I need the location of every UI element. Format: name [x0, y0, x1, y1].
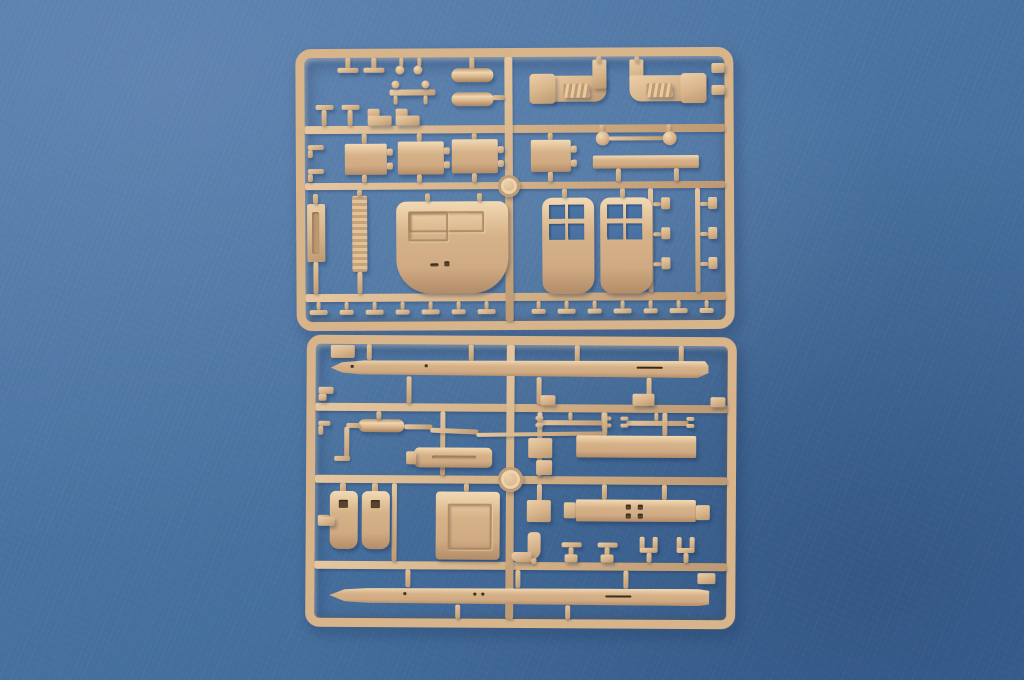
rail-rivet — [473, 593, 476, 596]
sprue-gate — [684, 553, 689, 563]
sprue-gate — [565, 301, 569, 309]
tie-rod-part — [626, 421, 688, 426]
sprue-bottom — [305, 335, 737, 630]
sprue-top — [295, 47, 734, 331]
hook-part — [708, 197, 717, 209]
sprue-gate — [602, 412, 607, 435]
beam-hole — [638, 505, 643, 510]
hatch-outline — [448, 504, 492, 550]
sprue-gate — [700, 232, 708, 236]
door-window — [626, 223, 642, 239]
sprue-gate — [357, 272, 362, 294]
fork-end — [535, 423, 543, 427]
clip-part — [540, 395, 555, 405]
sprue-gate — [548, 133, 553, 140]
fender-pillar-left — [592, 60, 606, 89]
sprue-gate — [417, 174, 422, 182]
rail-rivet — [481, 593, 484, 596]
clip-foot-part — [558, 309, 576, 314]
sprue-gate — [596, 57, 601, 63]
sprue-gate — [485, 301, 489, 309]
sprue-gate — [537, 301, 541, 309]
sprue-gate — [705, 300, 709, 308]
box-tab — [498, 160, 504, 167]
beam-hole — [626, 514, 631, 519]
axle-disc — [663, 131, 677, 145]
clip-foot-part — [670, 308, 688, 313]
fork-end — [620, 424, 628, 428]
box-part — [398, 141, 444, 174]
sprue-gate — [401, 302, 405, 310]
pin-head-part — [395, 66, 404, 75]
fender-block-right — [680, 73, 706, 103]
box-small-part — [536, 460, 552, 475]
sprue-gate — [317, 302, 321, 310]
sprue-gate — [620, 188, 625, 197]
box-small-part — [527, 500, 551, 522]
clip-foot-part — [340, 310, 354, 315]
sprue-gate — [649, 300, 653, 308]
sprue-gate — [357, 190, 362, 196]
sprue-gate — [455, 605, 460, 619]
sprue-gate — [677, 300, 681, 308]
gearbox-line — [432, 455, 476, 458]
gearbox-cap — [406, 451, 416, 464]
sprue-gate — [308, 150, 313, 158]
elbow-pipe-part — [512, 552, 532, 562]
sprue-gate — [373, 302, 377, 310]
sprue-gate — [575, 345, 580, 361]
fender-ribs-left — [563, 84, 589, 98]
t-clip-part — [363, 68, 384, 73]
clip-foot-part — [452, 309, 466, 314]
axle-rod — [609, 136, 664, 140]
tank-hole — [371, 500, 380, 508]
sprue-gate — [469, 345, 474, 361]
sprue-gate — [313, 194, 318, 204]
cab-panel-dot — [444, 261, 449, 266]
edge-tab-part — [711, 63, 724, 73]
clip-foot-part — [396, 310, 410, 315]
sprue-gate — [548, 172, 553, 182]
sprue-gate — [654, 413, 658, 421]
sprue-gate — [623, 571, 628, 589]
sprue-gate — [700, 262, 708, 266]
sprue-gate — [406, 376, 411, 403]
sprue-gate — [367, 344, 372, 360]
tank-hole — [339, 500, 348, 508]
sprue-gate — [653, 202, 661, 206]
cylinder-part — [451, 68, 493, 82]
beam-end-cap — [696, 505, 710, 520]
sprue-gate — [313, 262, 318, 294]
clip-foot-part — [588, 309, 602, 314]
box-part — [345, 144, 387, 175]
hook-part — [708, 227, 717, 239]
clip-foot-part — [478, 309, 496, 314]
tie-rod-part — [541, 420, 605, 425]
box-tab — [444, 161, 450, 168]
step-part — [368, 116, 392, 126]
sprue-gate — [647, 553, 652, 563]
t-clip-part — [337, 68, 358, 73]
muffler-part — [358, 419, 404, 432]
photo-scene — [0, 0, 1024, 680]
linkage-ball — [391, 81, 399, 89]
running-board-part — [593, 155, 699, 169]
post-foot — [601, 554, 614, 562]
sprue-gate — [417, 133, 422, 141]
door-window — [607, 223, 623, 239]
edge-bit-part — [318, 517, 335, 526]
cylinder-part — [451, 92, 493, 106]
sprue-gate — [653, 262, 661, 266]
step-part — [396, 115, 420, 125]
runner-v-left-lower — [392, 483, 397, 561]
beam-hole — [626, 505, 631, 510]
sprue-gate — [679, 346, 684, 362]
sprue-gate — [602, 484, 607, 499]
sprue-gate — [531, 558, 536, 564]
logo-medallion — [498, 175, 520, 197]
post-foot — [565, 554, 578, 562]
pin-head-part — [413, 65, 422, 74]
sprue-gate — [662, 485, 667, 500]
sprue-gate — [376, 411, 381, 419]
rail-rivet — [403, 592, 406, 595]
fork-end — [620, 417, 628, 421]
sprue-gate — [464, 484, 469, 492]
beam-part — [576, 499, 696, 522]
hook-part — [661, 257, 670, 269]
edge-tab-part — [710, 397, 725, 407]
sprue-gate — [318, 426, 323, 435]
sprue-gate — [621, 300, 625, 308]
edge-tab-part — [711, 85, 724, 95]
sprue-gate — [515, 570, 520, 588]
rail-rivet — [351, 365, 354, 368]
box-tab — [444, 147, 450, 154]
sprue-gate — [424, 95, 428, 104]
box-tab — [571, 160, 577, 167]
box-tab — [387, 163, 393, 170]
clip-foot-part — [614, 308, 632, 313]
box-tab — [571, 146, 577, 153]
box-tab — [498, 146, 504, 153]
door-window — [549, 205, 565, 219]
rail-rivet — [425, 364, 428, 367]
sprue-gate — [362, 175, 367, 183]
rail-slot — [605, 596, 631, 598]
door-window — [568, 224, 584, 240]
door-window — [568, 205, 584, 219]
fender-ribs-right — [646, 83, 672, 97]
channel-groove — [312, 212, 319, 254]
cab-panel-outline — [408, 211, 448, 241]
sprue-gate — [425, 193, 430, 201]
clip-foot-part — [366, 310, 384, 315]
sprue-gate — [405, 569, 410, 587]
sprue-gate — [616, 168, 621, 181]
exhaust-pipe-part — [404, 424, 432, 429]
hook-part — [661, 227, 670, 239]
sprue-gate — [348, 110, 353, 126]
sprue-gate — [322, 110, 327, 126]
sprue-gate — [457, 301, 461, 309]
clip-part — [632, 394, 654, 406]
sprue-gate — [700, 202, 708, 206]
box-part — [452, 139, 498, 173]
beam-end-cap — [564, 502, 576, 518]
sprue-gate — [634, 56, 639, 62]
clip-foot-part — [310, 310, 328, 315]
clip-foot-part — [422, 309, 440, 314]
sprue-gate — [562, 189, 567, 198]
sprue-gate — [362, 134, 367, 144]
exhaust-pipe-part — [344, 427, 349, 459]
clip-foot-part — [644, 308, 658, 313]
sprue-gate — [493, 95, 505, 100]
fork-end — [686, 417, 694, 421]
rail-slot — [637, 367, 663, 369]
sprue-gate — [345, 302, 349, 310]
fork-end — [535, 416, 543, 420]
door-window — [626, 204, 642, 218]
cab-panel-dash — [430, 263, 438, 266]
linkage-ball — [421, 80, 429, 88]
sprue-gate — [477, 193, 482, 201]
box-part — [531, 140, 571, 172]
axle-disc — [596, 132, 610, 146]
corner-block-part — [697, 573, 715, 584]
clip-foot-part — [700, 308, 714, 313]
door-window — [549, 224, 565, 240]
sprue-gate — [472, 173, 477, 182]
sprue-gate — [674, 168, 679, 181]
spring-part — [352, 196, 367, 272]
linkage-bar-part — [389, 89, 435, 95]
beam-hole — [638, 514, 643, 519]
corner-tab-part — [331, 345, 355, 358]
box-small-part — [528, 438, 552, 458]
sprue-gate — [308, 174, 313, 182]
beam-part — [576, 435, 696, 458]
fork-end — [686, 424, 694, 428]
logo-medallion — [498, 467, 523, 492]
fender-block-left — [529, 74, 555, 104]
clip-foot-part — [532, 309, 546, 314]
sprue-gate — [394, 96, 398, 105]
door-window — [607, 204, 623, 218]
exhaust-pipe-part — [334, 456, 350, 461]
sprue-gate — [653, 232, 661, 236]
box-tab — [387, 149, 393, 156]
sprue-gate — [429, 301, 433, 309]
sprue-gate — [593, 301, 597, 309]
sprue-gate — [568, 412, 572, 420]
hook-part — [661, 197, 670, 209]
sprue-gate — [662, 413, 667, 436]
sprue-gate — [565, 605, 570, 619]
hook-part — [708, 257, 717, 269]
edge-angle-part — [318, 394, 326, 401]
